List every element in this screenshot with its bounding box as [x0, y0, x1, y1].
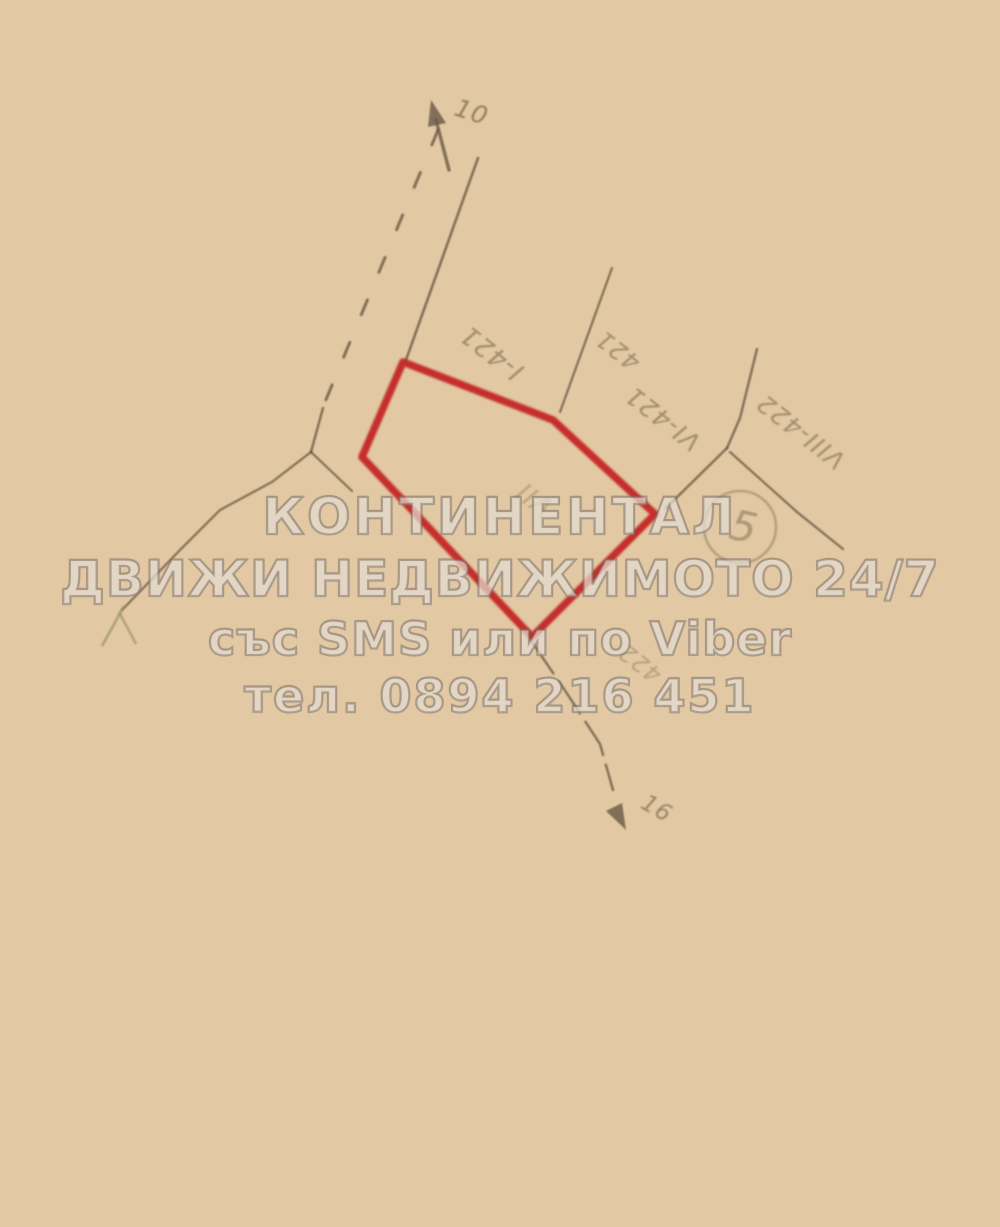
parcel-label-highlighted: VII	[510, 475, 559, 522]
parcel-label-mid-right: VI-421	[619, 380, 706, 457]
cadastral-sketch-svg: 5 10 16 I-421 421 VI-421 VIII-422 VII 42…	[0, 0, 1000, 1227]
parcel-label-top-right: 421	[590, 324, 646, 376]
parcel-boundary-line-right	[727, 349, 757, 448]
parcel-boundary-connector	[311, 452, 352, 491]
parcel-label-far-right: VIII-422	[751, 388, 851, 475]
north-road-arrow-shaft	[436, 120, 449, 170]
plot-sketch-photo: 5 10 16 I-421 421 VI-421 VIII-422 VII 42…	[0, 0, 1000, 1227]
road-number-bottom-label: 16	[636, 790, 676, 828]
road-axis-segment	[311, 408, 323, 452]
boundary-fork-stroke-1	[102, 606, 124, 646]
road-number-top-label: 10	[451, 93, 492, 131]
boundary-fork-stroke-2	[119, 612, 136, 644]
circled-number-label: 5	[725, 500, 762, 554]
south-road-arrow-icon	[606, 803, 626, 830]
north-road-arrow-icon	[428, 100, 446, 127]
highlighted-plot-outline	[362, 362, 655, 637]
south-road-line	[532, 642, 613, 790]
road-axis-dashed-line	[325, 130, 438, 402]
parcel-label-below-highlight: 422	[614, 638, 667, 687]
parcel-label-left: I-421	[455, 318, 530, 386]
parcel-boundary-line-left	[122, 452, 311, 610]
